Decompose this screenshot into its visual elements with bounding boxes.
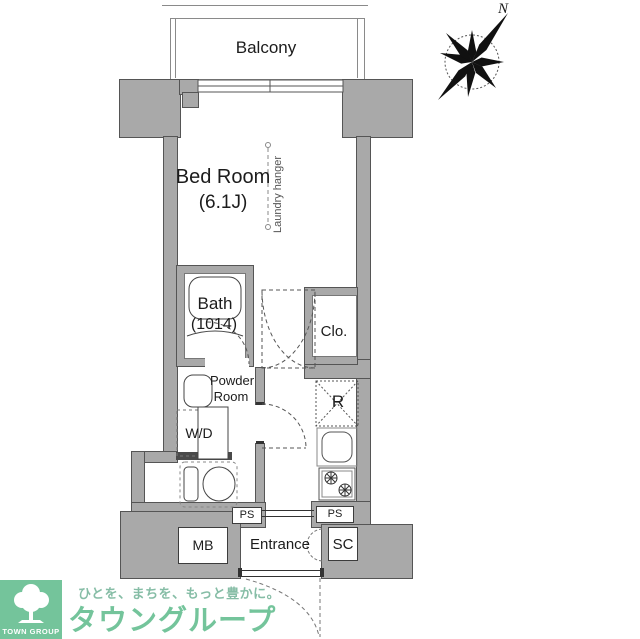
balcony-sliding-door-icon [198, 80, 343, 92]
mailbox-label: MB [193, 537, 214, 553]
wall-toilet-partition [176, 452, 232, 460]
door-jamb-lower [256, 441, 264, 444]
powder-room-label-1: Powder [210, 374, 254, 389]
door-jamb-upper [256, 402, 264, 405]
entrance-threshold-line-1 [240, 570, 322, 571]
closet-label: Clo. [321, 323, 348, 340]
floorplan-canvas: Balcony [0, 0, 640, 639]
wall-top-left-step2 [183, 93, 198, 107]
stove-icon [319, 468, 355, 500]
washer-dryer-label: W/D [185, 425, 212, 441]
ps-threshold-line-2 [262, 516, 314, 517]
bedroom-size-label: (6.1J) [199, 192, 248, 214]
bath-label: Bath [198, 294, 233, 314]
laundry-hanger-label: Laundry hanger [272, 138, 284, 233]
wall-right [357, 137, 370, 507]
entrance-door-stop-right [320, 568, 324, 577]
compass-north-label: N [498, 1, 508, 18]
tree-icon [0, 580, 62, 628]
balcony-side-line-right [357, 18, 358, 78]
shoe-closet-label: SC [333, 536, 354, 553]
ps-threshold-line-1 [262, 510, 314, 511]
entrance-threshold-line-2 [240, 576, 322, 577]
wall-top-left-step1 [180, 80, 198, 94]
balcony-outer-line [162, 5, 368, 6]
bedroom-label: Bed Room [176, 166, 271, 189]
brand-company-name: タウングループ [68, 597, 276, 639]
toilet-icon [180, 462, 237, 507]
balcony-side-line-left [175, 18, 176, 78]
wall-top-right [343, 80, 412, 137]
wall-corridor-lower [256, 444, 264, 505]
wall-corridor-upper [256, 368, 264, 404]
ps-right-label: PS [328, 508, 343, 521]
compass-icon [438, 13, 508, 100]
bath-door-opening [205, 358, 249, 367]
wall-top-left [120, 80, 180, 137]
bath-size-label: (1014) [191, 316, 237, 334]
powder-room-label-2: Room [214, 390, 249, 405]
balcony-label: Balcony [236, 38, 296, 58]
entrance-door-stop-left [238, 568, 242, 577]
powder-room-door-swing [262, 404, 306, 448]
ps-left-label: PS [240, 509, 255, 522]
entrance-label: Entrance [250, 536, 310, 553]
kitchen-sink-icon [317, 428, 357, 466]
powder-sink-icon [184, 375, 212, 407]
town-group-logo: TOWN GROUP [0, 580, 62, 639]
refrigerator-label: R [332, 392, 344, 412]
logo-text: TOWN GROUP [0, 627, 62, 636]
